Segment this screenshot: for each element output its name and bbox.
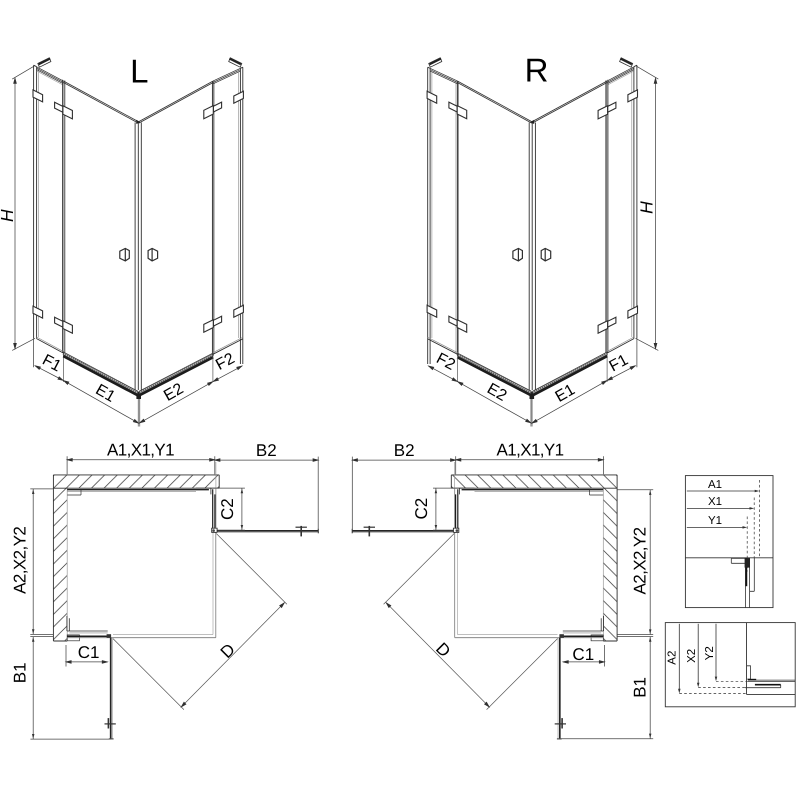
svg-text:X2: X2 bbox=[686, 649, 698, 663]
svg-text:A2,X2,Y2: A2,X2,Y2 bbox=[11, 527, 30, 594]
svg-text:C1: C1 bbox=[572, 645, 594, 664]
svg-text:Y1: Y1 bbox=[708, 515, 722, 527]
svg-text:C2: C2 bbox=[218, 498, 237, 520]
svg-text:Y2: Y2 bbox=[704, 646, 716, 660]
svg-text:E2: E2 bbox=[484, 380, 510, 404]
svg-text:E2: E2 bbox=[161, 380, 187, 404]
svg-text:B1: B1 bbox=[11, 662, 30, 683]
svg-text:A1,X1,Y1: A1,X1,Y1 bbox=[496, 441, 563, 460]
svg-text:E1: E1 bbox=[93, 381, 119, 405]
svg-text:F1: F1 bbox=[607, 352, 632, 376]
svg-text:A1,X1,Y1: A1,X1,Y1 bbox=[107, 441, 174, 460]
svg-text:D: D bbox=[432, 639, 454, 661]
svg-text:A2: A2 bbox=[667, 651, 679, 665]
svg-text:H: H bbox=[0, 209, 17, 222]
svg-text:L: L bbox=[130, 53, 148, 90]
svg-text:D: D bbox=[217, 640, 239, 662]
svg-text:C2: C2 bbox=[412, 498, 431, 520]
svg-text:A1: A1 bbox=[708, 479, 722, 491]
svg-text:F1: F1 bbox=[39, 352, 64, 376]
svg-text:C1: C1 bbox=[78, 643, 100, 662]
svg-text:X1: X1 bbox=[708, 496, 722, 508]
svg-text:E1: E1 bbox=[553, 381, 579, 405]
svg-text:B2: B2 bbox=[394, 441, 415, 460]
svg-text:H: H bbox=[636, 201, 656, 214]
svg-text:B2: B2 bbox=[256, 441, 277, 460]
svg-text:A2,X2,Y2: A2,X2,Y2 bbox=[631, 527, 650, 594]
svg-text:B1: B1 bbox=[631, 677, 650, 698]
svg-text:R: R bbox=[525, 52, 549, 89]
